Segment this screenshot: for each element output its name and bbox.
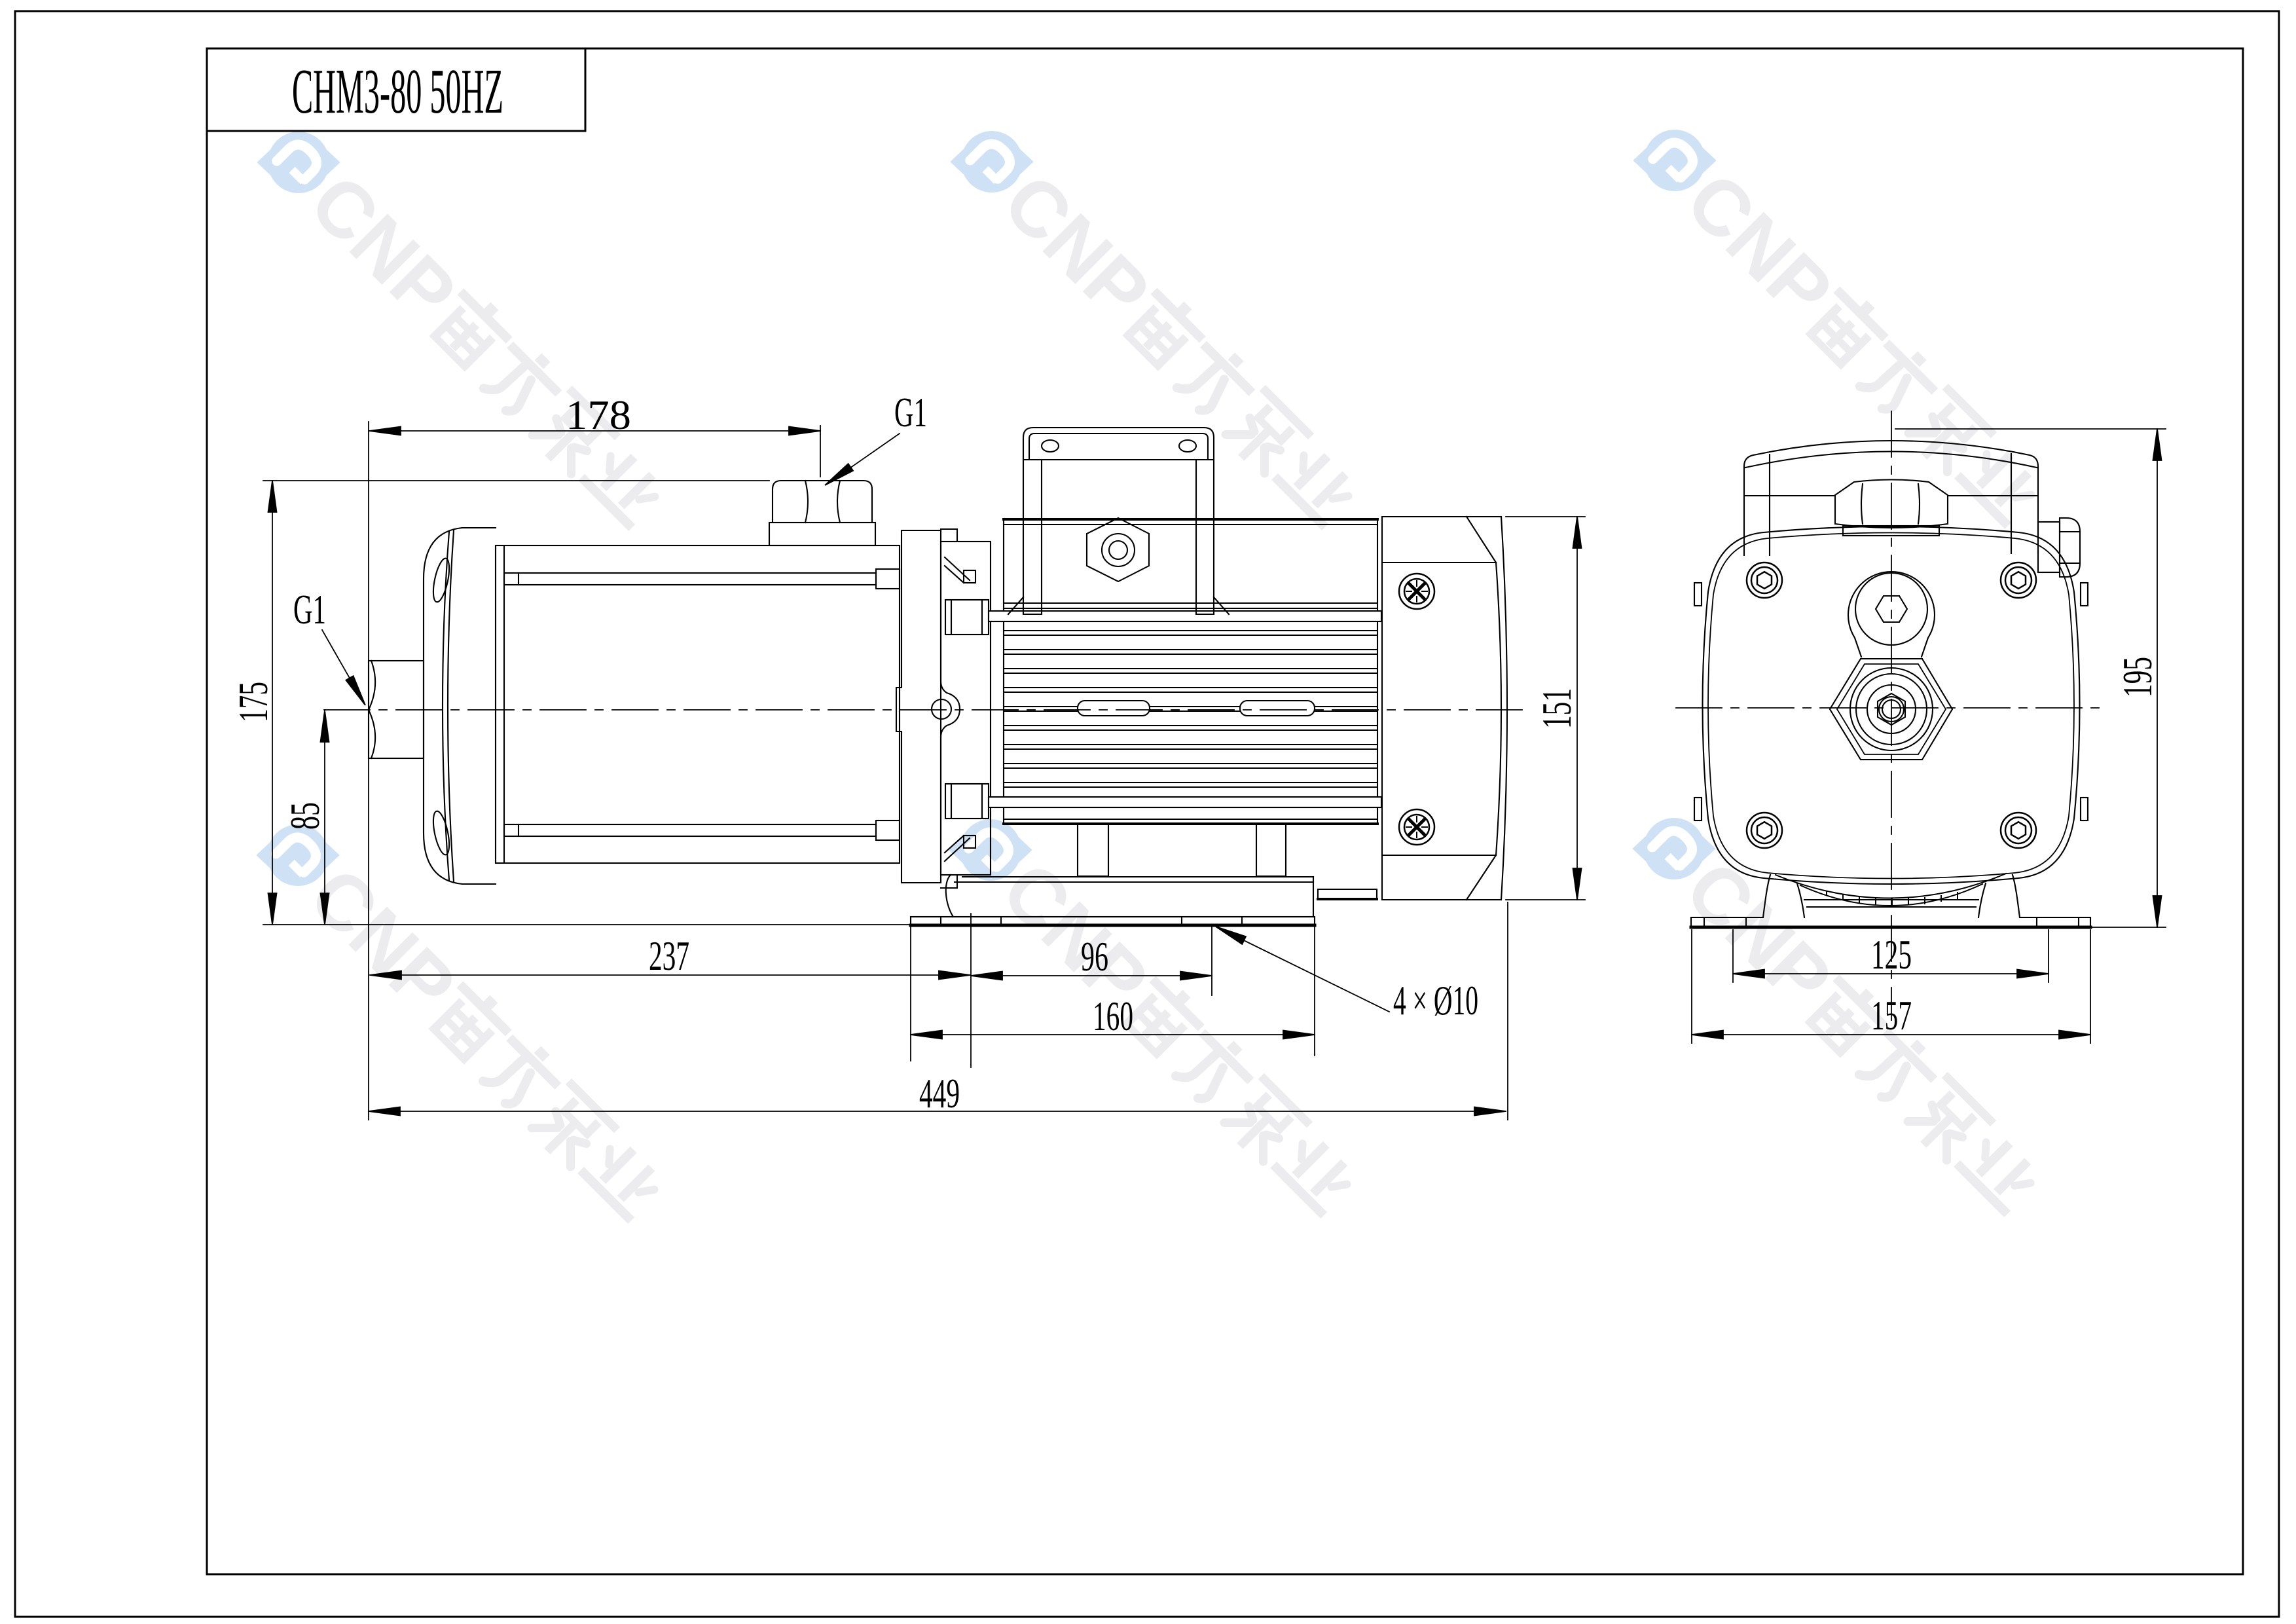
svg-text:125: 125 bbox=[1871, 931, 1912, 978]
svg-text:G1: G1 bbox=[894, 389, 927, 435]
svg-text:151: 151 bbox=[1533, 688, 1580, 729]
svg-text:175: 175 bbox=[230, 682, 276, 722]
svg-text:237: 237 bbox=[649, 932, 689, 979]
svg-text:G1: G1 bbox=[293, 586, 326, 633]
svg-text:4 × Ø10: 4 × Ø10 bbox=[1393, 977, 1478, 1024]
svg-text:449: 449 bbox=[919, 1070, 960, 1116]
svg-text:160: 160 bbox=[1093, 993, 1133, 1039]
svg-text:85: 85 bbox=[282, 802, 328, 830]
svg-text:195: 195 bbox=[2114, 657, 2160, 697]
svg-text:CHM3-80 50HZ: CHM3-80 50HZ bbox=[292, 56, 503, 127]
svg-text:178: 178 bbox=[566, 392, 631, 438]
svg-text:96: 96 bbox=[1081, 933, 1108, 980]
svg-text:157: 157 bbox=[1871, 992, 1912, 1039]
